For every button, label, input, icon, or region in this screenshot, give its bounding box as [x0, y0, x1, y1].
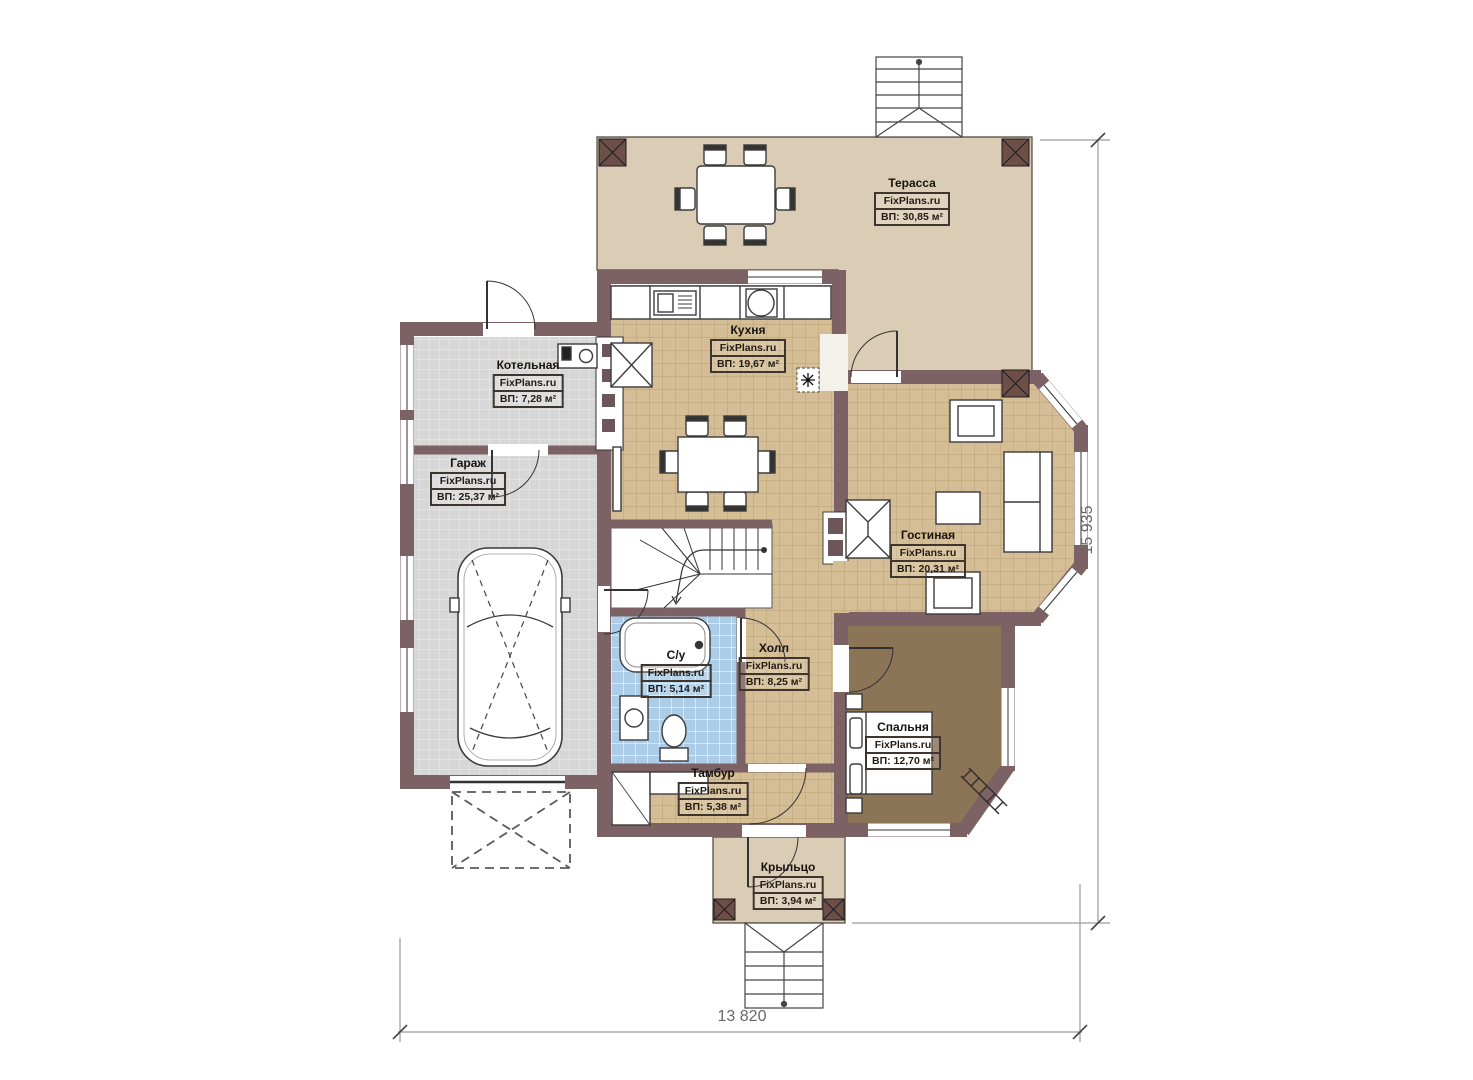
porch-post [714, 899, 735, 920]
room-name: Кухня [710, 323, 786, 337]
room-area-box: ВП: 25,37 м² [430, 488, 506, 506]
terrace-post [1002, 139, 1029, 166]
room-label-vestibule: Тамбур FixPlans.ru ВП: 5,38 м² [678, 766, 749, 816]
room-label-living: Гостиная FixPlans.ru ВП: 20,31 м² [890, 528, 966, 578]
kitchen-stove [611, 343, 652, 387]
room-name: Крыльцо [753, 860, 824, 874]
terrace-post [599, 139, 626, 166]
room-area-box: ВП: 3,94 м² [753, 892, 824, 910]
boiler-unit [558, 344, 597, 368]
driveway-apron [452, 792, 570, 868]
room-name: С/у [641, 648, 712, 662]
porch-stairs [745, 923, 823, 1008]
terrace-stairs [876, 57, 962, 137]
room-label-porch: Крыльцо FixPlans.ru ВП: 3,94 м² [753, 860, 824, 910]
room-area-box: ВП: 20,31 м² [890, 560, 966, 578]
flue-marker-icon [801, 373, 815, 387]
room-area-box: ВП: 5,14 м² [641, 680, 712, 698]
stairs-zone [611, 524, 772, 608]
room-area-box: ВП: 7,28 м² [493, 390, 564, 408]
kitchen-counter [611, 286, 831, 319]
floor-plan-page: Терасса FixPlans.ru ВП: 30,85 м² Кухня F… [0, 0, 1473, 1080]
room-name: Холл [739, 641, 810, 655]
car [450, 548, 570, 766]
room-label-terrace: Терасса FixPlans.ru ВП: 30,85 м² [874, 176, 950, 226]
living-armchair-bottom [926, 572, 980, 614]
room-name: Гараж [430, 456, 506, 470]
room-name: Спальня [865, 720, 941, 734]
room-label-hall: Холл FixPlans.ru ВП: 8,25 м² [739, 641, 810, 691]
nightstand [846, 694, 862, 709]
fireplace-chimney [823, 512, 848, 564]
room-label-garage: Гараж FixPlans.ru ВП: 25,37 м² [430, 456, 506, 506]
room-name: Котельная [493, 358, 564, 372]
room-name: Терасса [874, 176, 950, 190]
room-label-boiler: Котельная FixPlans.ru ВП: 7,28 м² [493, 358, 564, 408]
floor-plan-drawing [0, 0, 1473, 1080]
living-armchair-top [950, 400, 1002, 442]
kitchen-radiator [613, 447, 621, 511]
dimension-width: 13 820 [718, 1008, 767, 1026]
room-name: Тамбур [678, 766, 749, 780]
dimension-height: 15 935 [1079, 506, 1097, 555]
room-area-box: ВП: 5,38 м² [678, 798, 749, 816]
nightstand [846, 798, 862, 813]
living-coffee-table [936, 492, 980, 524]
room-area-box: ВП: 30,85 м² [874, 208, 950, 226]
room-area-box: ВП: 12,70 м² [865, 752, 941, 770]
porch-post [823, 899, 844, 920]
room-label-kitchen: Кухня FixPlans.ru ВП: 19,67 м² [710, 323, 786, 373]
terrace-post [1002, 370, 1029, 397]
toilet [660, 715, 688, 761]
washing-machine [620, 696, 648, 740]
room-label-bedroom: Спальня FixPlans.ru ВП: 12,70 м² [865, 720, 941, 770]
living-sofa [1004, 452, 1052, 552]
room-name: Гостиная [890, 528, 966, 542]
room-label-bathroom: С/у FixPlans.ru ВП: 5,14 м² [641, 648, 712, 698]
room-area-box: ВП: 8,25 м² [739, 673, 810, 691]
fireplace [846, 500, 890, 558]
room-area-box: ВП: 19,67 м² [710, 355, 786, 373]
